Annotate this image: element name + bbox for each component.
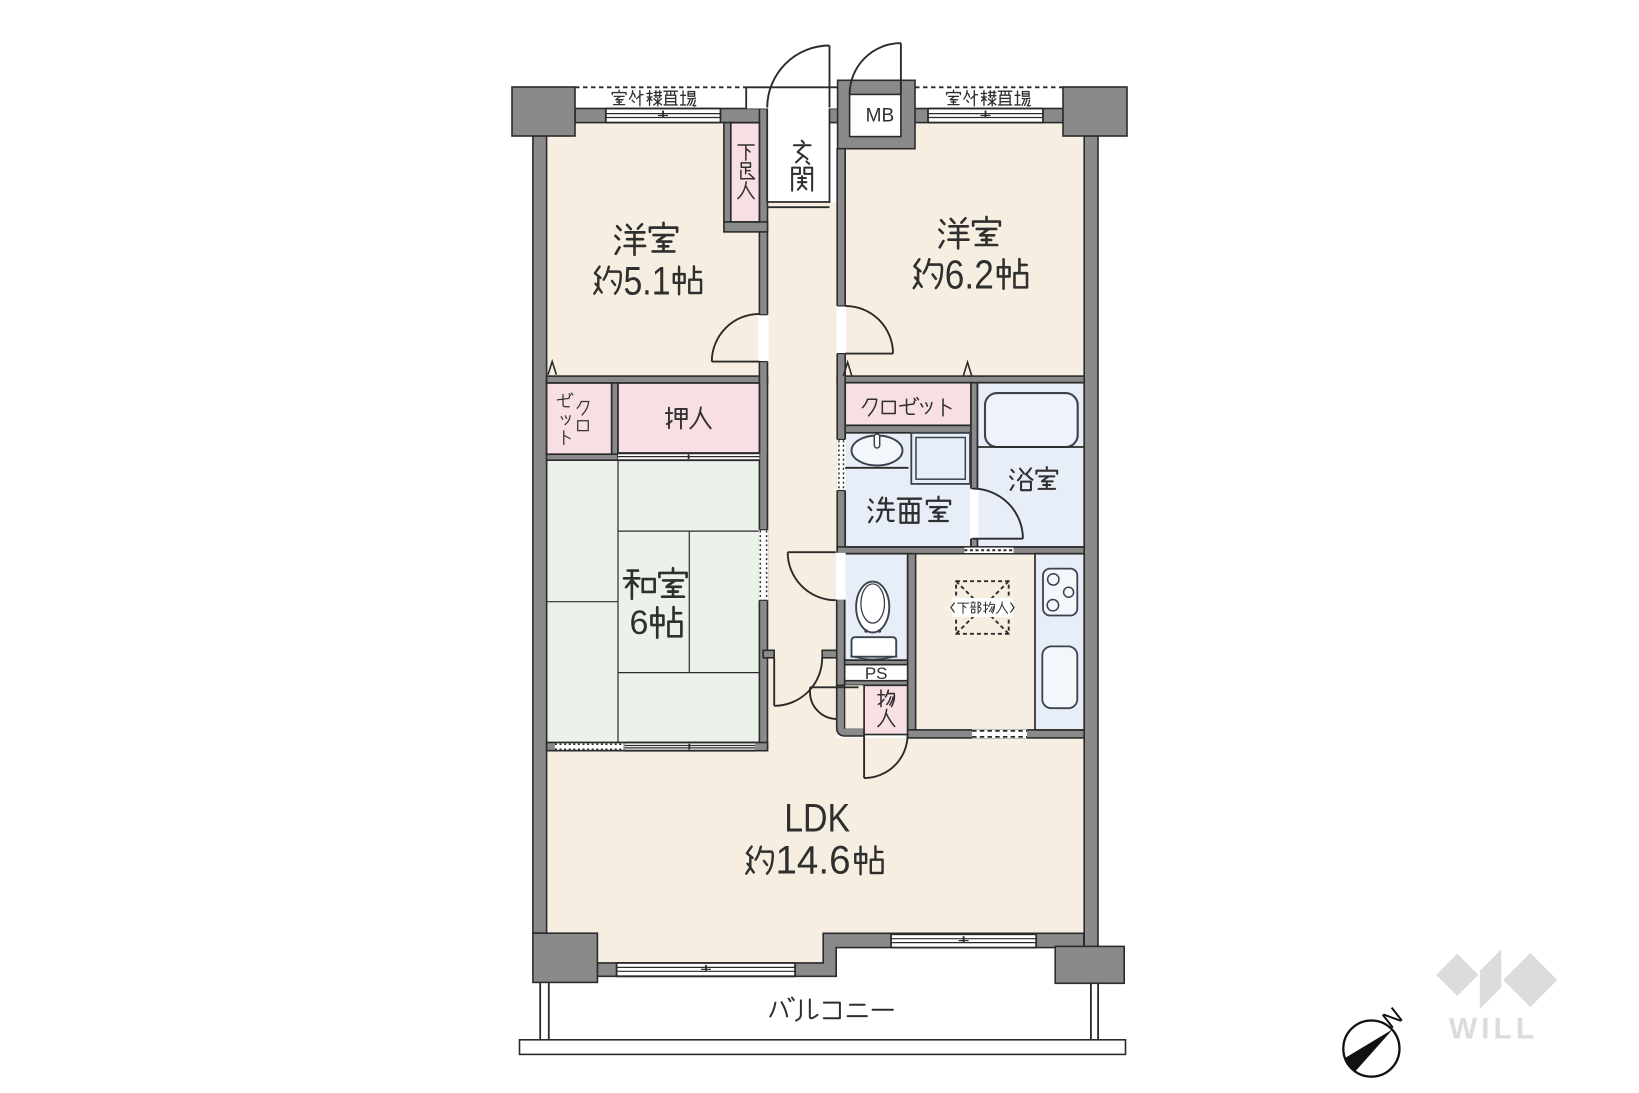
svg-text:MB: MB	[866, 106, 895, 127]
svg-text:14.6: 14.6	[776, 839, 851, 883]
svg-text:6.2: 6.2	[945, 252, 994, 298]
svg-text:WILL: WILL	[1449, 1013, 1538, 1046]
svg-text:PS: PS	[865, 664, 888, 683]
svg-text:6: 6	[630, 604, 649, 642]
svg-text:LDK: LDK	[784, 797, 850, 841]
svg-text:5.1: 5.1	[624, 260, 671, 304]
